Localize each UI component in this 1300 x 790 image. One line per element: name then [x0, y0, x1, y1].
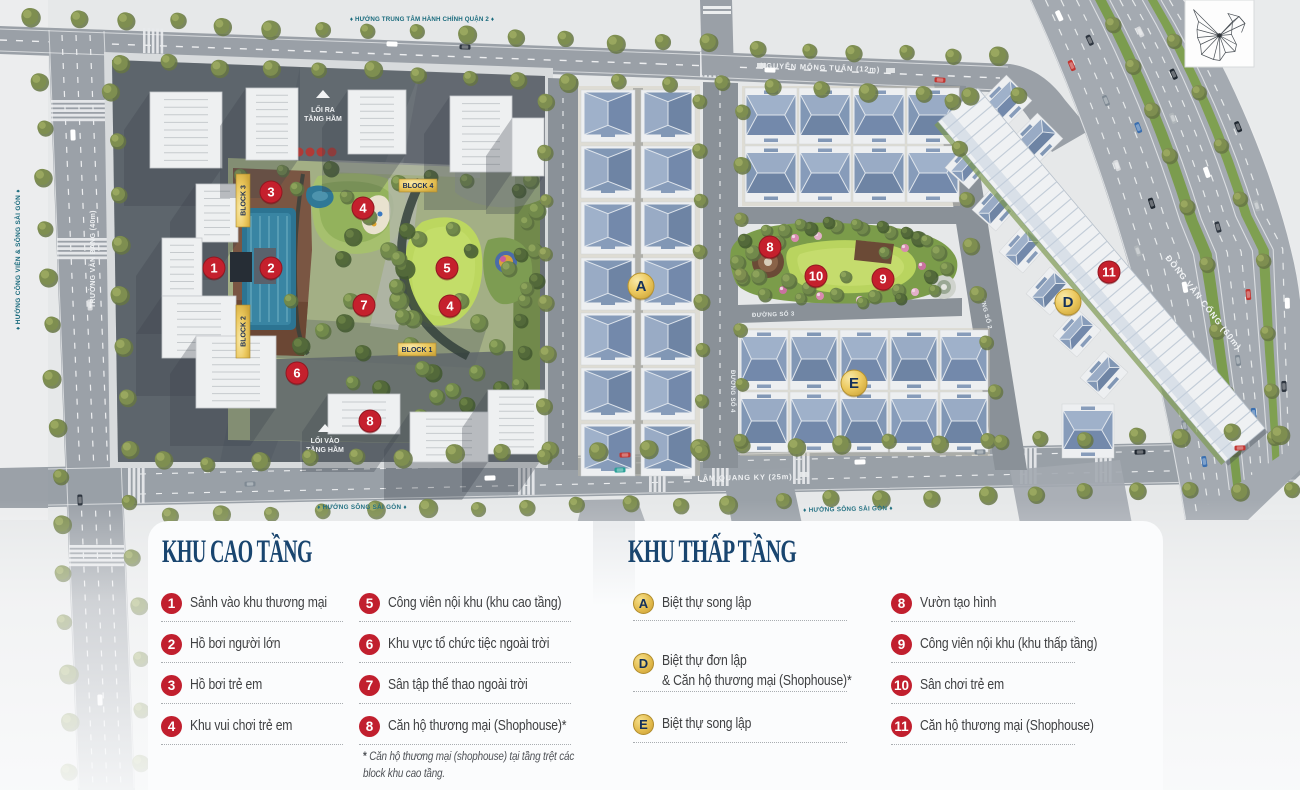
svg-text:BLOCK 1: BLOCK 1 [402, 347, 433, 354]
svg-text:D: D [1063, 294, 1074, 311]
svg-text:1: 1 [210, 261, 217, 276]
svg-text:3: 3 [267, 185, 274, 200]
svg-text:5: 5 [443, 261, 450, 276]
svg-text:4: 4 [446, 299, 454, 314]
svg-text:8: 8 [766, 240, 773, 255]
svg-text:♦ HƯỚNG TRUNG TÂM HÀNH CHÍNH Q: ♦ HƯỚNG TRUNG TÂM HÀNH CHÍNH QUẬN 2 ♦ [350, 15, 494, 23]
svg-text:7: 7 [360, 298, 367, 313]
svg-text:BLOCK 4: BLOCK 4 [403, 183, 434, 190]
svg-text:ĐƯỜNG SỐ 4: ĐƯỜNG SỐ 4 [729, 370, 737, 413]
svg-text:E: E [849, 375, 859, 392]
svg-text:6: 6 [293, 366, 300, 381]
svg-text:10: 10 [809, 269, 823, 284]
svg-text:♦ HƯỚNG CÔNG VIÊN & SÔNG SÀI G: ♦ HƯỚNG CÔNG VIÊN & SÔNG SÀI GÒN ♦ [13, 189, 22, 330]
svg-text:9: 9 [879, 272, 886, 287]
svg-text:11: 11 [1102, 265, 1116, 280]
svg-text:A: A [636, 278, 647, 295]
svg-text:BLOCK 2: BLOCK 2 [241, 316, 248, 347]
svg-text:8: 8 [366, 414, 373, 429]
svg-text:BLOCK 3: BLOCK 3 [241, 185, 248, 216]
svg-text:4: 4 [359, 201, 367, 216]
svg-text:2: 2 [267, 261, 274, 276]
svg-text:TRƯỜNG VĂN BANG (40m): TRƯỜNG VĂN BANG (40m) [88, 210, 97, 308]
